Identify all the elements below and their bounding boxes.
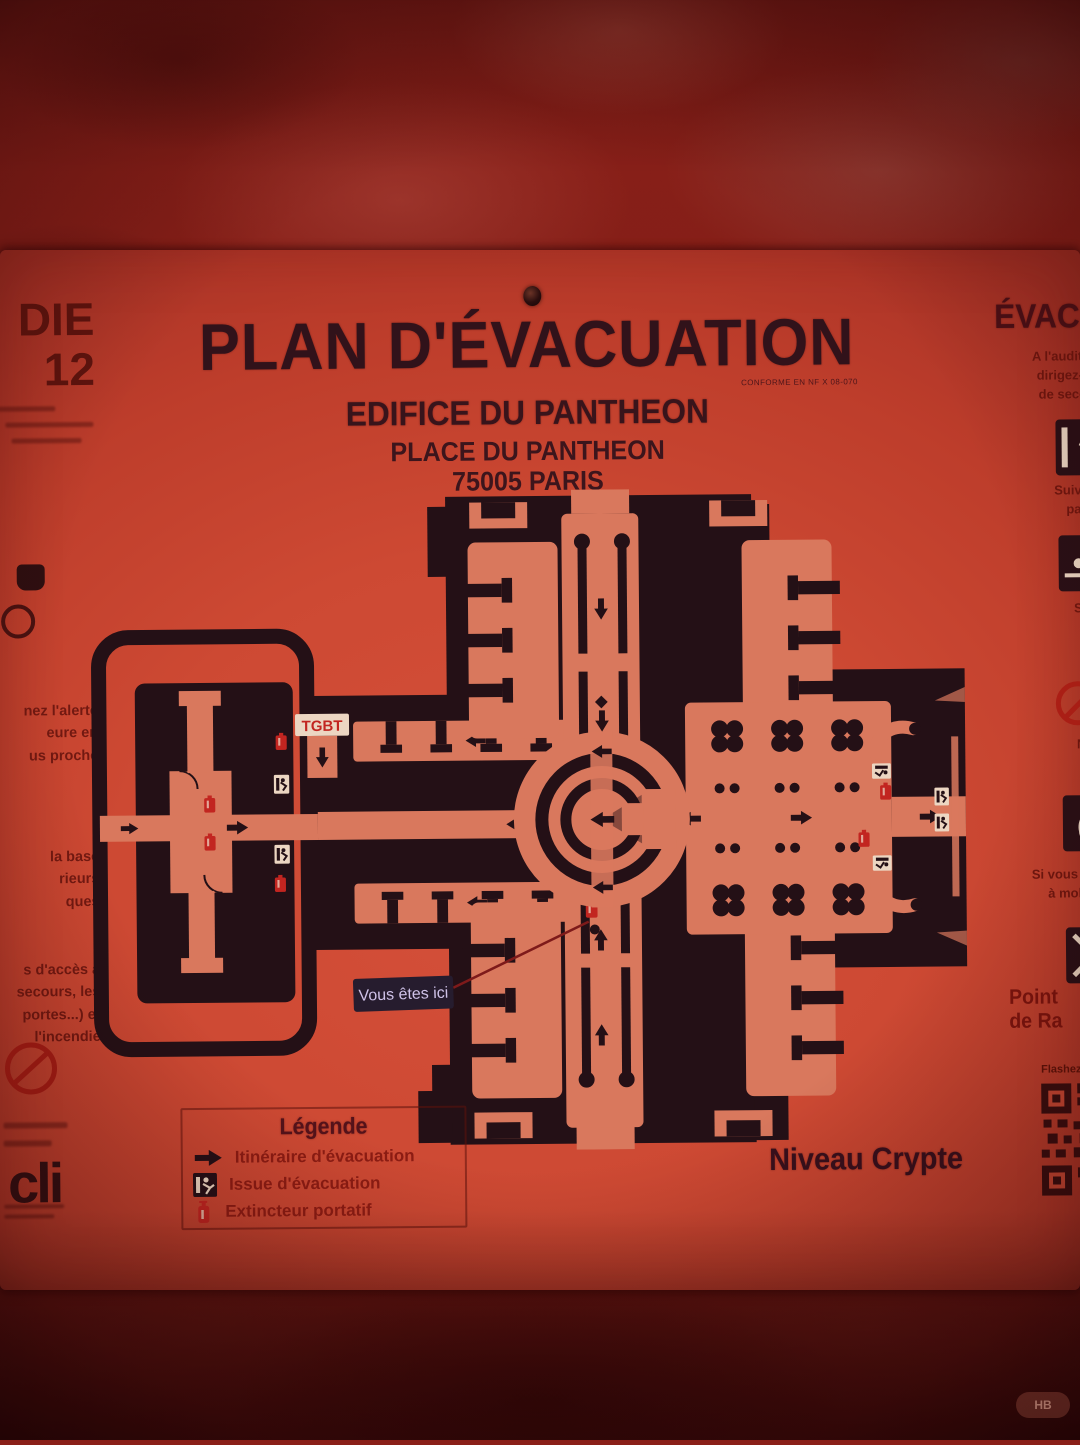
emergency-exit-icon (934, 788, 949, 806)
legend-title: Légende (202, 1112, 446, 1141)
right-paragraph: A l'audition du si dirigez-vous ve de se… (989, 346, 1080, 404)
left-smudge-line (4, 1140, 52, 1146)
logo-smudge-line (4, 1214, 54, 1218)
sign-content: PLAN D'ÉVACUATION CONFORME EN NF X 08-07… (0, 0, 1080, 1445)
legend-row: Extincteur portatif (193, 1196, 455, 1225)
left-text-group: s d'accès à secours, les portes...) et l… (2, 959, 101, 1050)
left-fragment-number: 12 (0, 346, 95, 393)
left-smudge-line (12, 438, 82, 444)
west-annex (98, 636, 320, 1050)
flash-label: Flashez (1041, 1063, 1080, 1075)
emergency-exit-icon (873, 855, 892, 870)
right-paragraph: Ne revenez sans y av (1016, 734, 1080, 773)
right-paragraph: Si vous le pouvez à mobilité ré (991, 864, 1080, 903)
mounting-screw (523, 286, 541, 306)
prohibition-icon (5, 1042, 57, 1094)
evacuation-heading: ÉVACUATION (994, 296, 1080, 337)
running-man-exit-icon (1055, 419, 1080, 475)
phone-icon (17, 564, 45, 590)
left-text-group: la base rieurs ques (1, 846, 100, 914)
left-smudge-line (5, 422, 93, 428)
legend-row: Issue d'évacuation (193, 1169, 455, 1198)
building-name: EDIFICE DU PANTHEON (211, 391, 844, 436)
conformity-note: CONFORME EN NF X 08-070 (741, 377, 858, 387)
left-smudge-line (3, 1122, 67, 1129)
central-rotunda (513, 731, 691, 909)
assembly-point-label: Point de Ra (1009, 985, 1080, 1034)
emergency-exit-icon (274, 775, 289, 794)
fire-extinguisher-icon (193, 1198, 213, 1224)
right-paragraph: Si vous êtes la fumée, l'air frais (1017, 598, 1080, 656)
emergency-exit-icon (935, 814, 950, 832)
legend-box: Légende Itinéraire d'évacuation Issue d'… (180, 1106, 467, 1230)
floor-plan: TGBT (83, 486, 969, 1154)
emergency-exit-icon (193, 1172, 217, 1196)
assembly-point-icon (1066, 927, 1080, 983)
legend-row: Itinéraire d'évacuation (193, 1142, 455, 1171)
left-fragment-incendie: DIE (0, 296, 95, 343)
do-not-return-icon (1056, 681, 1080, 725)
qr-code (1039, 1081, 1080, 1200)
level-label: Niveau Crypte (769, 1140, 963, 1178)
tgbt-label: TGBT (302, 718, 343, 735)
legend-item-label: Issue d'évacuation (229, 1173, 381, 1194)
left-smudge-line (0, 406, 55, 412)
right-paragraph: Suivez les inst par le guid (1004, 480, 1080, 519)
evacuation-route-arrow-icon (193, 1149, 223, 1165)
legend-item-label: Extincteur portatif (225, 1200, 372, 1221)
smoke-crawl-icon (1058, 535, 1080, 591)
emergency-exit-icon (274, 845, 289, 864)
plan-title: PLAN D'ÉVACUATION (173, 303, 880, 385)
logo-smudge-line (4, 1204, 64, 1209)
photo-watermark: HB (1016, 1392, 1070, 1418)
legend-item-label: Itinéraire d'évacuation (235, 1146, 415, 1168)
emergency-exit-icon (872, 763, 891, 778)
you-are-here-label: Vous êtes ici (358, 985, 448, 1005)
flames-icon (1063, 795, 1080, 851)
left-text-group: nez l'alerte eure en us proche (0, 700, 98, 768)
circle-icon (1, 604, 35, 638)
